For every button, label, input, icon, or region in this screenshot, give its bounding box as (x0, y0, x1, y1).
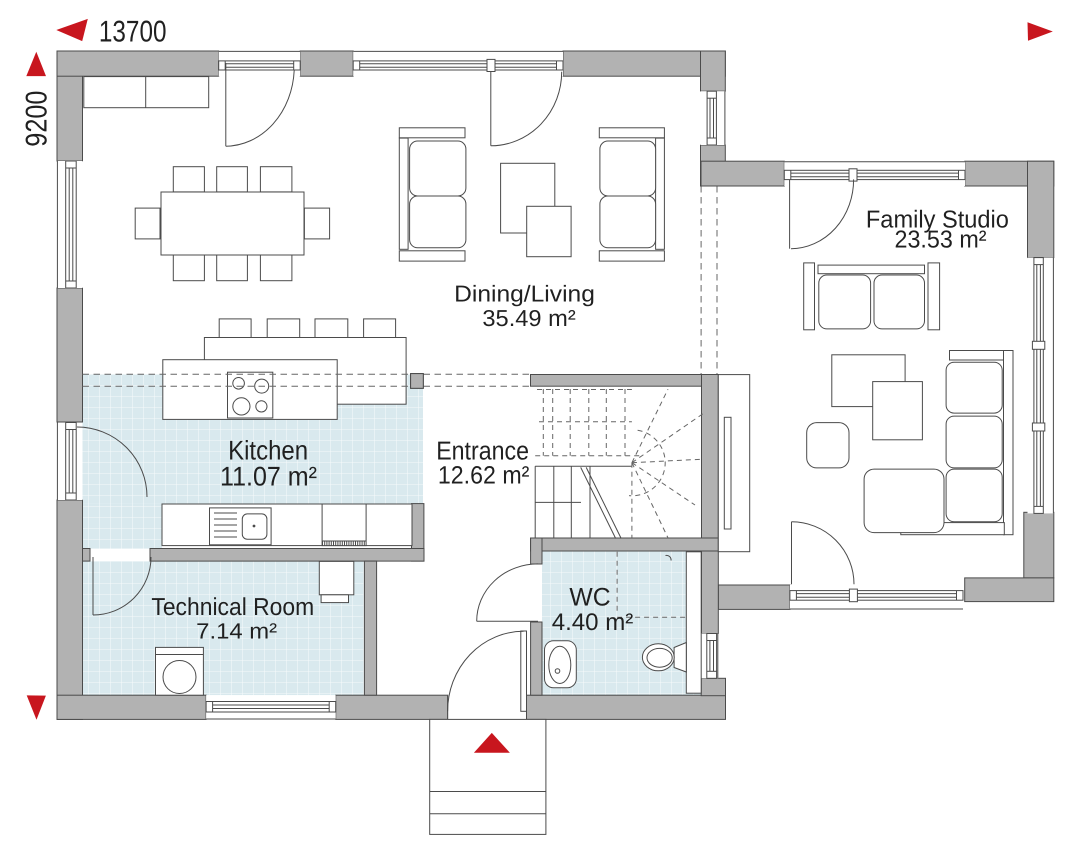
svg-text:12.62 m²: 12.62 m² (438, 462, 530, 490)
svg-text:23.53 m²: 23.53 m² (895, 227, 987, 254)
svg-text:WC: WC (569, 584, 610, 612)
svg-text:35.49 m²: 35.49 m² (482, 305, 576, 331)
svg-text:13700: 13700 (99, 16, 167, 49)
svg-text:11.07 m²: 11.07 m² (220, 462, 317, 492)
svg-text:Dining/Living: Dining/Living (454, 281, 595, 307)
svg-text:7.14 m²: 7.14 m² (196, 619, 277, 644)
svg-text:4.40 m²: 4.40 m² (552, 609, 634, 636)
svg-text:9200: 9200 (21, 91, 54, 147)
svg-text:Technical Room: Technical Room (151, 594, 314, 621)
